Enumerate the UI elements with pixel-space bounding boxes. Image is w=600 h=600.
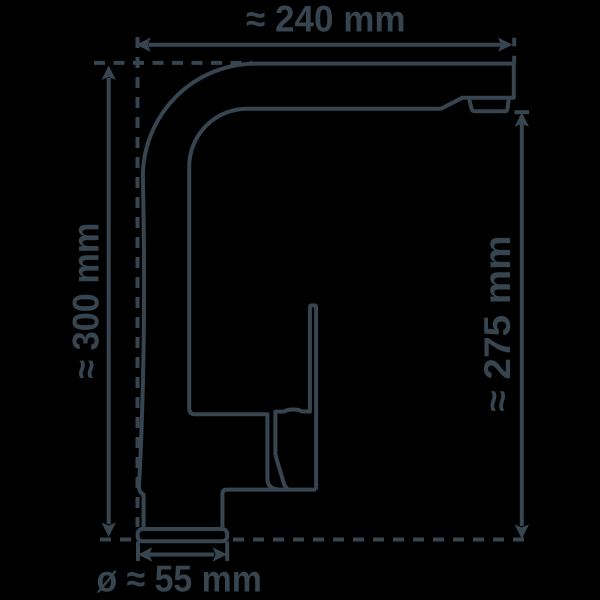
svg-text:≈ 240 mm: ≈ 240 mm [246, 0, 406, 40]
svg-text:≈ 300 mm: ≈ 300 mm [65, 223, 106, 379]
svg-text:≈ 275 mm: ≈ 275 mm [478, 235, 519, 411]
svg-text:ø ≈ 55 mm: ø ≈ 55 mm [97, 558, 262, 600]
